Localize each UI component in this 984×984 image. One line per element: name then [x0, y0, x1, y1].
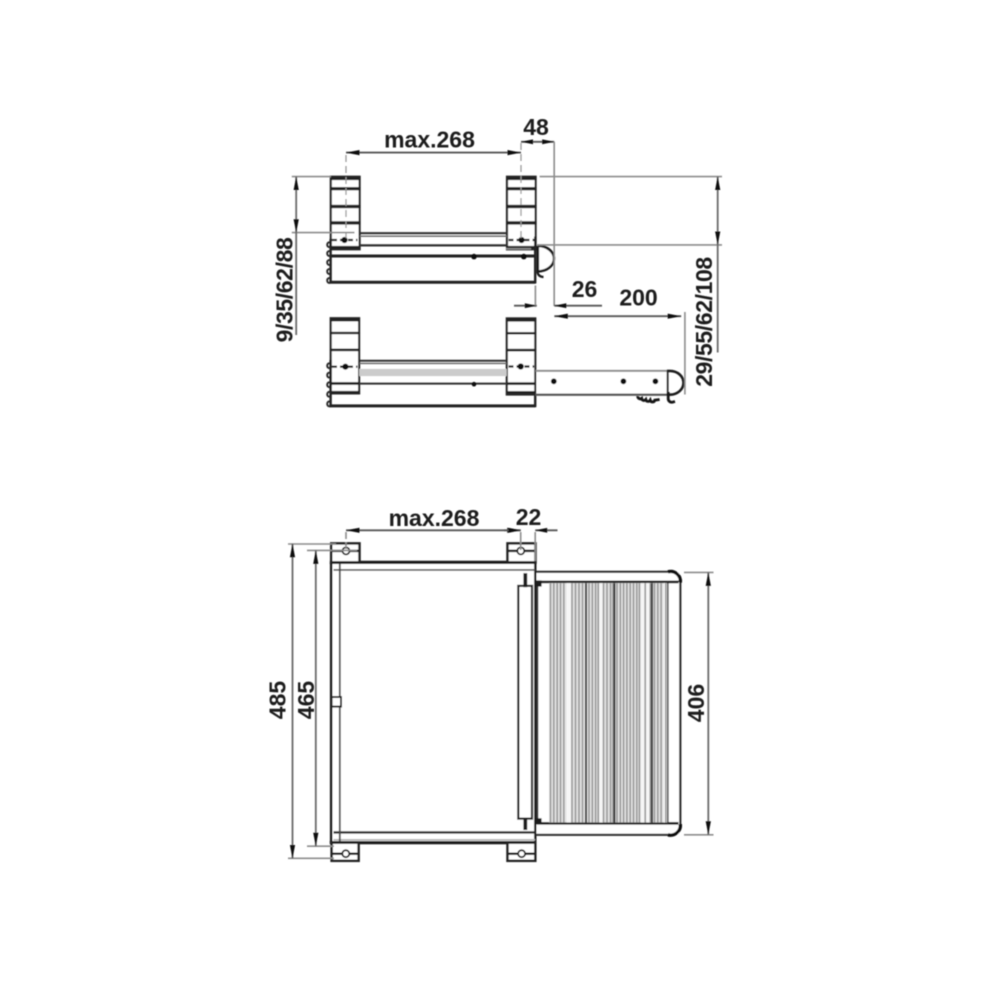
svg-text:406: 406: [683, 684, 709, 722]
svg-text:max.268: max.268: [389, 505, 480, 531]
svg-text:9/35/62/88: 9/35/62/88: [272, 237, 298, 342]
svg-text:200: 200: [619, 285, 657, 311]
svg-text:485: 485: [265, 681, 291, 720]
svg-text:22: 22: [516, 504, 542, 530]
svg-text:48: 48: [523, 114, 549, 140]
svg-text:29/55/62/108: 29/55/62/108: [691, 257, 717, 387]
svg-text:max.268: max.268: [384, 127, 475, 153]
svg-text:26: 26: [572, 276, 598, 302]
